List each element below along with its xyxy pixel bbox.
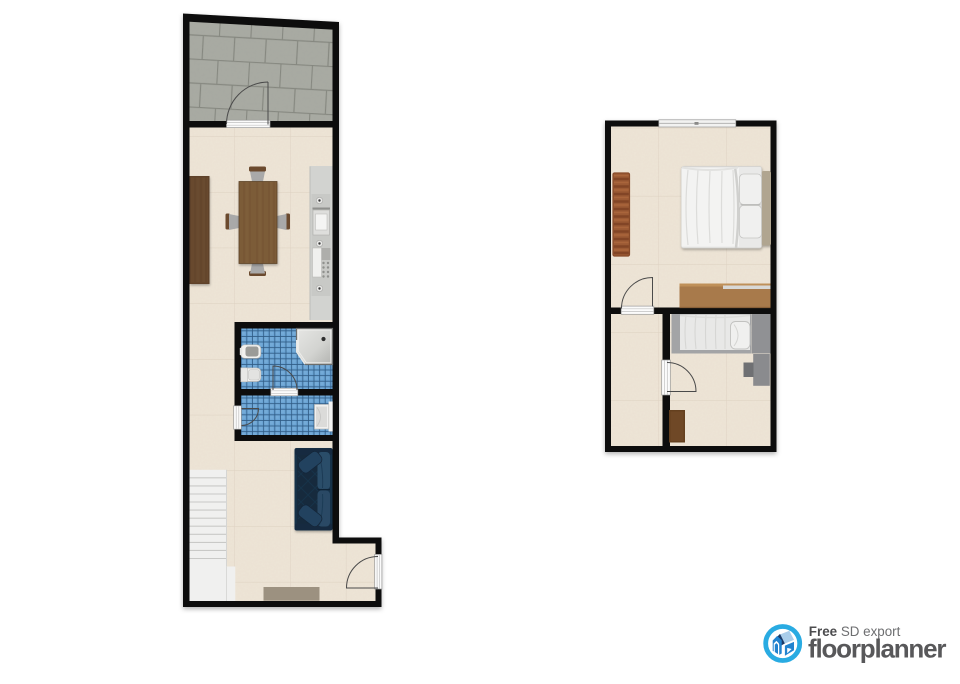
svg-text:floorplanner: floorplanner [808,634,946,664]
